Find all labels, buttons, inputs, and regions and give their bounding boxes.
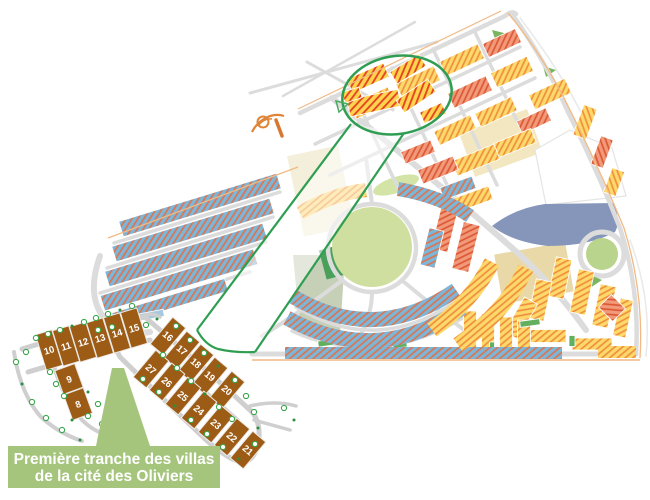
olive-tree-icon [129,303,134,308]
olive-tree-dot-icon [71,325,74,328]
caption-line-1: Première tranche des villas [14,451,215,468]
olive-tree-icon [173,323,178,328]
olive-tree-icon [61,393,66,398]
housing-block [526,330,566,343]
housing-block [569,336,575,347]
olive-tree-dot-icon [204,393,207,396]
olive-tree-dot-icon [79,439,82,442]
olive-tree-icon [85,413,90,418]
olive-tree-icon [204,431,209,436]
housing-block [448,76,493,108]
olive-tree-icon [13,359,18,364]
olive-tree-icon [95,401,100,406]
olive-tree-icon [53,381,58,386]
olive-tree-dot-icon [156,318,159,321]
olive-tree-dot-icon [174,405,177,408]
olive-tree-icon [95,327,100,332]
olive-tree-icon [220,444,225,449]
caption-line-2: de la cité des Oliviers [35,468,194,485]
olive-tree-dot-icon [238,458,241,461]
olive-tree-icon [252,441,257,446]
olive-tree-icon [201,350,206,355]
olive-tree-icon [29,399,34,404]
housing-block [570,269,595,315]
olive-tree-dot-icon [87,391,90,394]
olive-tree-icon [216,404,221,409]
olive-tree-icon [93,315,98,320]
housing-block [452,222,480,273]
olive-tree-icon [57,327,62,332]
olive-tree-icon [188,378,193,383]
olive-tree-icon [109,324,114,329]
master-plan-scene: 89101112131415161718192021222324252627 P… [0,0,650,500]
olive-tree-icon [160,352,165,357]
olive-tree-icon [156,389,161,394]
olive-tree-icon [47,369,52,374]
housing-block [418,156,459,184]
olive-tree-icon [187,337,192,342]
olive-tree-icon [243,393,248,398]
olive-tree-icon [45,331,50,336]
olive-tree-dot-icon [71,419,74,422]
housing-block [440,44,485,76]
olive-tree-icon [33,335,38,340]
olive-tree-icon [59,427,64,432]
olive-tree-icon [281,405,286,410]
olive-tree-dot-icon [257,427,260,430]
housing-block [401,140,436,164]
olive-tree-icon [229,416,234,421]
olive-tree-icon [23,349,28,354]
olive-tree-dot-icon [217,365,220,368]
olive-tree-icon [174,365,179,370]
olive-tree-dot-icon [293,419,296,422]
olive-tree-icon [43,415,48,420]
olive-tree-icon [140,376,145,381]
olive-tree-icon [232,377,237,382]
olive-tree-icon [105,311,110,316]
olive-sprig-icon [252,115,284,136]
olive-tree-icon [81,319,86,324]
roundabout-green [586,238,618,270]
olive-tree-icon [143,322,148,327]
olive-tree-dot-icon [21,383,24,386]
olive-tree-icon [251,409,256,414]
olive-tree-dot-icon [119,309,122,312]
olive-tree-icon [188,417,193,422]
housing-block [500,317,513,351]
